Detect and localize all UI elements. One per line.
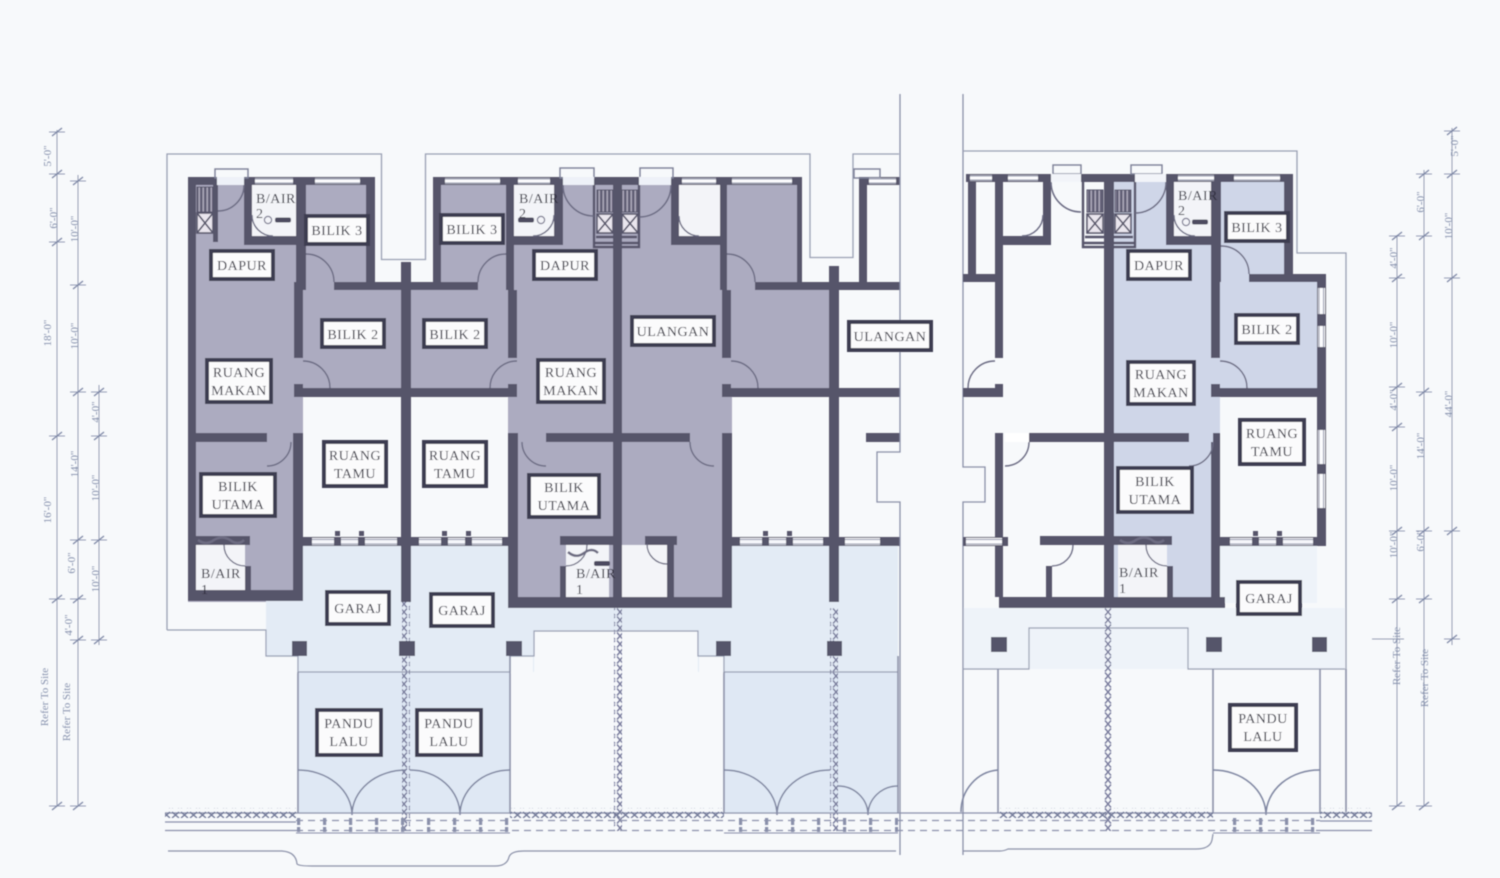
svg-text:10'-0": 10'-0" — [1388, 322, 1400, 349]
svg-text:TAMU: TAMU — [334, 467, 376, 482]
svg-text:UTAMA: UTAMA — [538, 499, 591, 514]
svg-text:DAPUR: DAPUR — [540, 259, 590, 274]
svg-text:Refer To Site: Refer To Site — [1419, 649, 1431, 707]
svg-text:1: 1 — [576, 583, 584, 598]
svg-text:RUANG: RUANG — [1135, 368, 1187, 383]
svg-text:TAMU: TAMU — [434, 467, 476, 482]
svg-text:LALU: LALU — [429, 735, 468, 750]
svg-text:PANDU: PANDU — [1238, 712, 1287, 727]
svg-text:18'-0": 18'-0" — [42, 320, 54, 347]
svg-text:PANDU: PANDU — [424, 717, 473, 732]
svg-text:TAMU: TAMU — [1251, 445, 1293, 460]
svg-text:10'-0": 10'-0" — [90, 566, 102, 593]
svg-text:6'-0": 6'-0" — [1415, 530, 1427, 551]
svg-text:10'-0": 10'-0" — [1443, 213, 1455, 240]
svg-text:BILIK: BILIK — [218, 480, 258, 495]
svg-text:6'-0": 6'-0" — [1415, 191, 1427, 212]
svg-text:LALU: LALU — [1243, 730, 1282, 745]
svg-text:B/AIR: B/AIR — [201, 567, 241, 582]
svg-text:Refer To Site: Refer To Site — [1391, 627, 1403, 685]
svg-text:B/AIR: B/AIR — [576, 567, 616, 582]
svg-text:10'-0": 10'-0" — [69, 323, 81, 350]
svg-text:ULANGAN: ULANGAN — [637, 325, 710, 340]
svg-text:6'-0": 6'-0" — [48, 207, 60, 228]
svg-text:GARAJ: GARAJ — [438, 604, 486, 619]
svg-text:MAKAN: MAKAN — [211, 384, 266, 399]
svg-text:B/AIR: B/AIR — [1119, 566, 1159, 581]
svg-text:RUANG: RUANG — [545, 366, 597, 381]
svg-text:DAPUR: DAPUR — [1134, 259, 1184, 274]
svg-text:BILIK: BILIK — [544, 481, 584, 496]
svg-text:BILIK 3: BILIK 3 — [1231, 221, 1282, 236]
svg-text:BILIK 2: BILIK 2 — [327, 328, 378, 343]
svg-text:1: 1 — [201, 583, 209, 598]
svg-text:1: 1 — [1119, 582, 1127, 597]
svg-text:B/AIR: B/AIR — [519, 192, 559, 207]
svg-text:10'-0": 10'-0" — [69, 216, 81, 243]
svg-text:14'-0": 14'-0" — [1415, 433, 1427, 460]
svg-text:B/AIR: B/AIR — [256, 192, 296, 207]
svg-text:BILIK 2: BILIK 2 — [429, 328, 480, 343]
svg-text:Refer To Site: Refer To Site — [39, 668, 51, 726]
svg-text:LALU: LALU — [329, 735, 368, 750]
svg-text:2: 2 — [519, 207, 527, 222]
svg-text:4'-0": 4'-0" — [63, 614, 75, 635]
svg-text:2: 2 — [256, 207, 264, 222]
svg-text:Refer To Site: Refer To Site — [61, 683, 73, 741]
svg-text:16'-0": 16'-0" — [42, 497, 54, 524]
svg-text:4'-0": 4'-0" — [1388, 389, 1400, 410]
svg-text:BILIK 3: BILIK 3 — [446, 223, 497, 238]
svg-text:44'-0": 44'-0" — [1443, 391, 1455, 418]
svg-text:10'-0": 10'-0" — [90, 475, 102, 502]
svg-text:GARAJ: GARAJ — [1245, 592, 1293, 607]
svg-text:BILIK: BILIK — [1135, 475, 1175, 490]
svg-text:UTAMA: UTAMA — [212, 498, 265, 513]
svg-text:2: 2 — [1178, 204, 1186, 219]
svg-text:4'-0": 4'-0" — [90, 401, 102, 422]
svg-text:10'-0": 10'-0" — [1388, 532, 1400, 559]
svg-text:ULANGAN: ULANGAN — [854, 330, 927, 345]
svg-text:GARAJ: GARAJ — [334, 602, 382, 617]
svg-text:5'-0": 5'-0" — [1449, 135, 1461, 156]
svg-text:RUANG: RUANG — [1246, 427, 1298, 442]
svg-text:MAKAN: MAKAN — [1133, 386, 1188, 401]
svg-text:14'-0": 14'-0" — [69, 451, 81, 478]
svg-text:RUANG: RUANG — [329, 449, 381, 464]
svg-text:BILIK 3: BILIK 3 — [311, 224, 362, 239]
svg-text:UTAMA: UTAMA — [1129, 493, 1182, 508]
svg-text:PANDU: PANDU — [324, 717, 373, 732]
svg-text:MAKAN: MAKAN — [543, 384, 598, 399]
svg-text:B/AIR: B/AIR — [1178, 189, 1218, 204]
svg-text:DAPUR: DAPUR — [217, 259, 267, 274]
svg-text:4'-0": 4'-0" — [1388, 247, 1400, 268]
svg-text:RUANG: RUANG — [213, 366, 265, 381]
svg-text:10'-0": 10'-0" — [1388, 465, 1400, 492]
svg-text:5'-0": 5'-0" — [42, 145, 54, 166]
svg-text:RUANG: RUANG — [429, 449, 481, 464]
svg-text:BILIK 2: BILIK 2 — [1241, 323, 1292, 338]
svg-text:6'-0": 6'-0" — [66, 552, 78, 573]
